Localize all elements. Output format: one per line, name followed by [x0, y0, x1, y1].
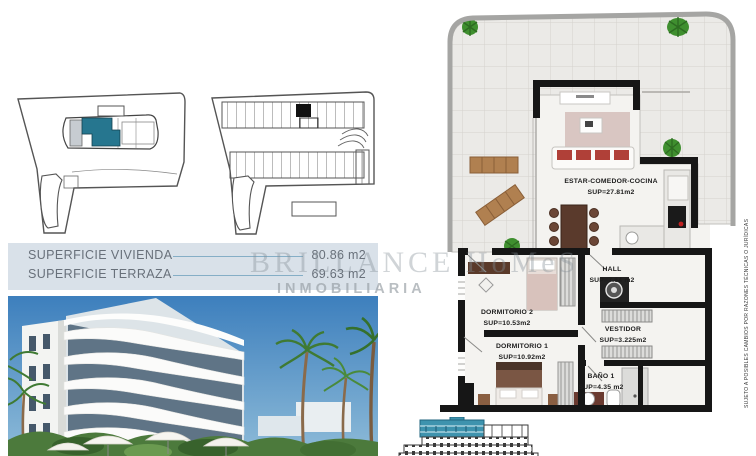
room-label-dormitorio-2: DORMITORIO 2 SUP=10.53m2 — [457, 307, 557, 329]
kitchen-sink — [626, 232, 638, 244]
watermark-subtitle: INMOBILIARIA — [277, 281, 426, 297]
site-plan-location — [12, 76, 202, 236]
area-row-label: SUPERFICIE TERRAZA — [28, 267, 172, 281]
building-render — [8, 296, 378, 456]
elevation-floor — [422, 437, 528, 445]
plan-sheet: SUPERFICIE VIVIENDA 80.86 m2 SUPERFICIE … — [0, 0, 756, 456]
stove — [668, 206, 686, 228]
parking-row — [230, 152, 364, 178]
highlighted-unit-elevation — [420, 420, 484, 437]
building-annex — [98, 106, 124, 116]
highlighted-storage — [296, 104, 311, 117]
building-elevation-thumbnail — [396, 417, 541, 456]
dining-table — [550, 205, 599, 249]
coffee-table — [580, 118, 602, 133]
wardrobe — [602, 310, 652, 322]
room-label-dormitorio-1: DORMITORIO 1 SUP=10.92m2 — [472, 341, 572, 363]
watermark-brand: BRILLANCE HoMeS — [250, 246, 579, 280]
pool-outline — [292, 202, 336, 216]
sofa — [552, 147, 634, 169]
legal-disclaimer: SUJETO A POSIBLES CAMBIOS POR RAZONES TÉ… — [744, 248, 754, 408]
wardrobe — [602, 346, 652, 358]
tv-sideboard — [560, 92, 610, 104]
room-label-vestidor: VESTIDOR SUP=3.225m2 — [573, 324, 673, 346]
area-row-label: SUPERFICIE VIVIENDA — [28, 248, 172, 262]
parking-row — [222, 102, 364, 128]
room-label-living: ESTAR-COMEDOR-COCINA SUP=27.81m2 — [541, 176, 681, 198]
room-label-bano: BAÑO 1 SUP=4.35 m2 — [551, 371, 651, 393]
elevation-floor — [404, 445, 532, 453]
site-plan-parking — [200, 74, 382, 246]
